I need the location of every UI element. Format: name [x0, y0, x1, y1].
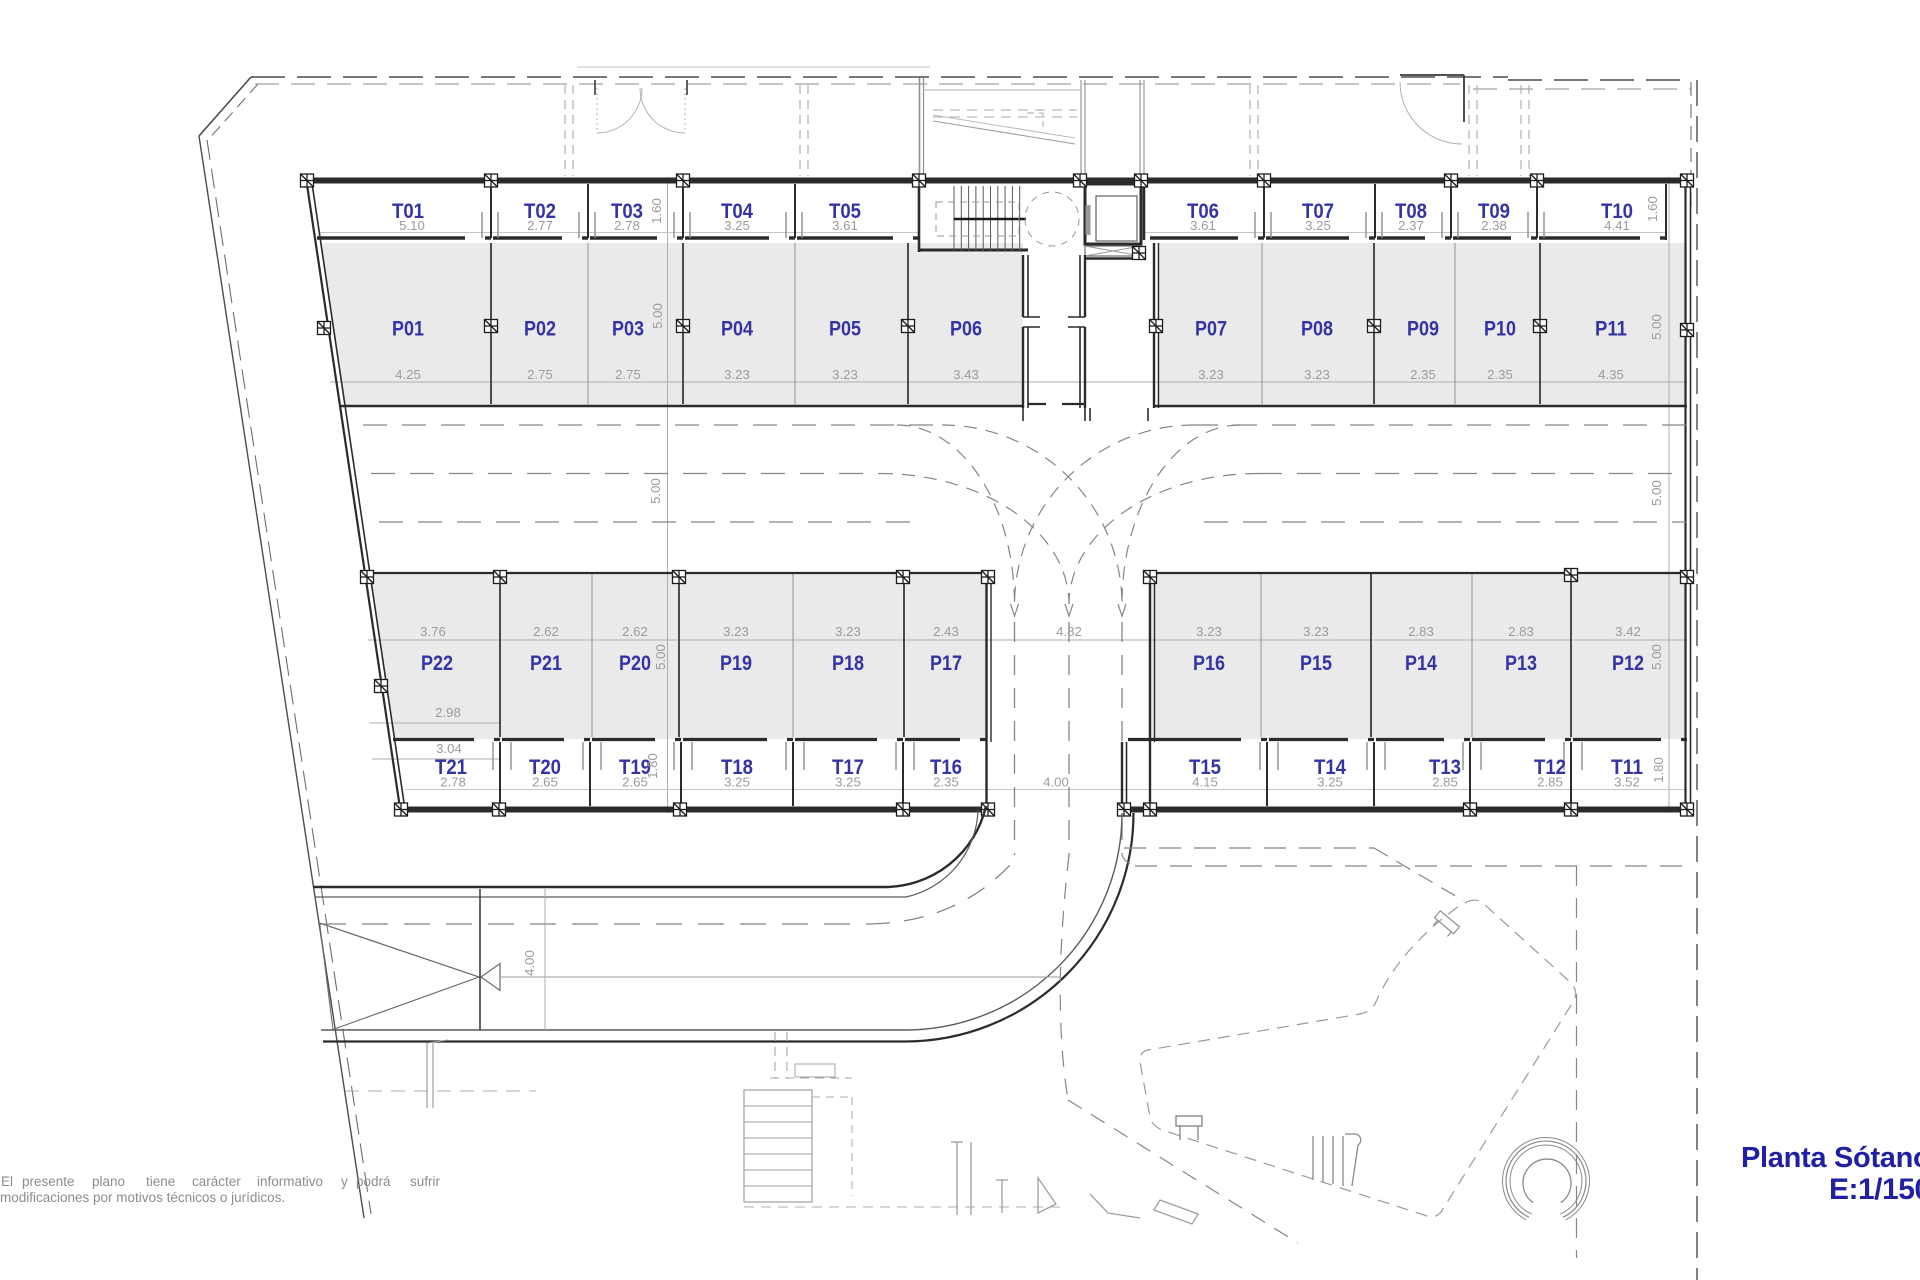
svg-text:3.25: 3.25: [1305, 218, 1331, 233]
svg-text:2.85: 2.85: [1537, 775, 1563, 790]
svg-text:5.00: 5.00: [653, 644, 668, 670]
svg-text:4.35: 4.35: [1598, 367, 1624, 382]
svg-text:3.25: 3.25: [724, 775, 750, 790]
svg-text:3.23: 3.23: [1196, 624, 1222, 639]
svg-text:2.38: 2.38: [1481, 218, 1507, 233]
svg-text:P09: P09: [1407, 318, 1439, 341]
svg-text:P07: P07: [1195, 318, 1227, 341]
svg-text:P03: P03: [612, 318, 644, 341]
svg-text:P08: P08: [1301, 318, 1333, 341]
svg-text:2.35: 2.35: [1410, 367, 1436, 382]
svg-text:P19: P19: [720, 652, 752, 675]
svg-text:3.04: 3.04: [436, 741, 462, 756]
svg-text:P22: P22: [421, 652, 453, 675]
svg-text:3.23: 3.23: [1303, 624, 1329, 639]
svg-text:P04: P04: [721, 318, 753, 341]
svg-text:Planta Sótano: Planta Sótano: [1741, 1142, 1920, 1174]
svg-text:2.78: 2.78: [440, 775, 466, 790]
svg-text:2.75: 2.75: [527, 367, 553, 382]
svg-text:1.80: 1.80: [1651, 757, 1666, 783]
svg-text:4.00: 4.00: [522, 950, 537, 976]
svg-text:3.43: 3.43: [953, 367, 979, 382]
svg-text:modificaciones por motivos téc: modificaciones por motivos técnicos o ju…: [0, 1190, 285, 1205]
svg-text:P12: P12: [1612, 652, 1644, 675]
svg-text:E:1/150: E:1/150: [1829, 1173, 1920, 1206]
svg-text:3.61: 3.61: [1190, 218, 1216, 233]
svg-text:2.75: 2.75: [615, 367, 641, 382]
svg-text:4.15: 4.15: [1192, 775, 1218, 790]
svg-text:2.85: 2.85: [1432, 775, 1458, 790]
svg-text:2.83: 2.83: [1508, 624, 1534, 639]
svg-text:2.78: 2.78: [614, 218, 640, 233]
svg-text:3.25: 3.25: [1317, 775, 1343, 790]
svg-text:3.23: 3.23: [1304, 367, 1330, 382]
svg-text:P14: P14: [1405, 652, 1437, 675]
svg-text:5.00: 5.00: [1649, 314, 1664, 340]
svg-text:P18: P18: [832, 652, 864, 675]
svg-text:P15: P15: [1300, 652, 1332, 675]
svg-text:3.61: 3.61: [832, 218, 858, 233]
svg-text:2.62: 2.62: [622, 624, 648, 639]
svg-text:3.25: 3.25: [724, 218, 750, 233]
svg-text:1.60: 1.60: [1645, 196, 1660, 222]
svg-text:3.25: 3.25: [835, 775, 861, 790]
svg-text:4.00: 4.00: [1043, 775, 1069, 790]
svg-text:5.00: 5.00: [648, 478, 663, 504]
svg-text:P01: P01: [392, 318, 424, 341]
svg-text:P10: P10: [1484, 318, 1516, 341]
svg-text:4.25: 4.25: [395, 367, 421, 382]
svg-text:3.23: 3.23: [723, 624, 749, 639]
svg-text:P21: P21: [530, 652, 562, 675]
svg-text:2.65: 2.65: [622, 775, 648, 790]
svg-text:3.23: 3.23: [1198, 367, 1224, 382]
svg-text:2.83: 2.83: [1408, 624, 1434, 639]
svg-text:3.23: 3.23: [835, 624, 861, 639]
svg-text:2.35: 2.35: [933, 775, 959, 790]
svg-text:P05: P05: [829, 318, 861, 341]
svg-text:3.76: 3.76: [420, 624, 446, 639]
svg-text:5.00: 5.00: [1649, 480, 1664, 506]
svg-text:P02: P02: [524, 318, 556, 341]
svg-text:P16: P16: [1193, 652, 1225, 675]
svg-text:2.77: 2.77: [527, 218, 553, 233]
svg-text:4.41: 4.41: [1604, 218, 1630, 233]
svg-text:3.42: 3.42: [1615, 624, 1641, 639]
svg-text:1.80: 1.80: [645, 753, 660, 779]
svg-text:P17: P17: [930, 652, 962, 675]
svg-text:4.82: 4.82: [1056, 624, 1082, 639]
svg-text:2.37: 2.37: [1398, 218, 1424, 233]
svg-text:P20: P20: [619, 652, 651, 675]
svg-text:1.60: 1.60: [649, 198, 664, 224]
svg-text:2.98: 2.98: [435, 705, 461, 720]
svg-text:P11: P11: [1595, 318, 1627, 341]
svg-text:5.00: 5.00: [1649, 644, 1664, 670]
svg-text:3.23: 3.23: [724, 367, 750, 382]
svg-text:P06: P06: [950, 318, 982, 341]
svg-text:2.65: 2.65: [532, 775, 558, 790]
svg-text:P13: P13: [1505, 652, 1537, 675]
svg-text:2.35: 2.35: [1487, 367, 1513, 382]
svg-text:3.23: 3.23: [832, 367, 858, 382]
svg-text:2.62: 2.62: [533, 624, 559, 639]
svg-text:5.10: 5.10: [399, 218, 425, 233]
svg-text:2.43: 2.43: [933, 624, 959, 639]
svg-text:5.00: 5.00: [650, 303, 665, 329]
svg-text:Elpresenteplanotienecarácterin: Elpresenteplanotienecarácterinformativoy…: [1, 1174, 441, 1189]
svg-text:3.52: 3.52: [1614, 775, 1640, 790]
